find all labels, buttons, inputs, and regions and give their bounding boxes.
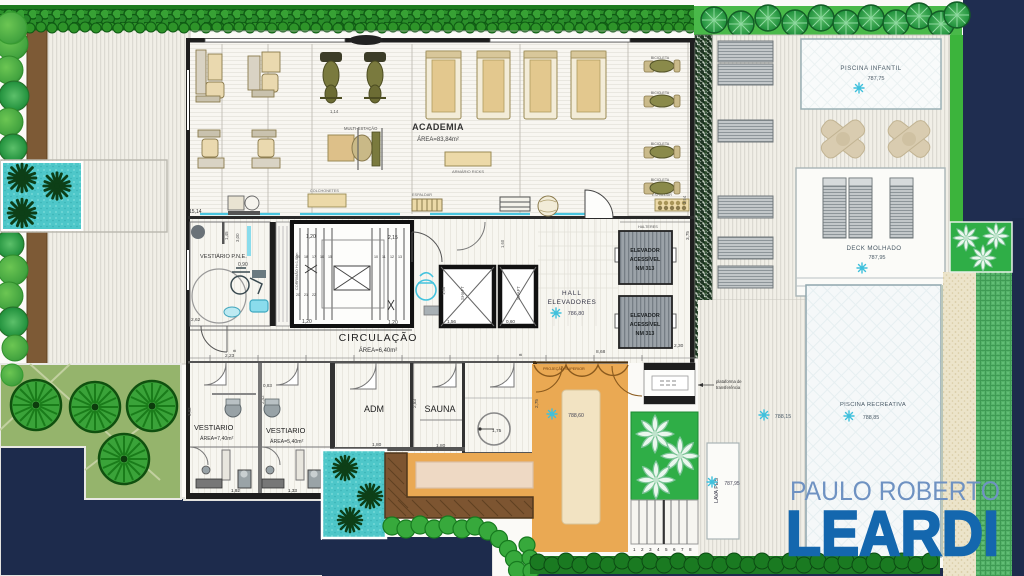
svg-text:ELEVADOR: ELEVADOR (630, 248, 660, 254)
svg-text:18: 18 (304, 255, 308, 259)
svg-text:21: 21 (304, 293, 308, 297)
svg-text:1,20: 1,20 (302, 319, 312, 325)
svg-text:7: 7 (681, 547, 684, 552)
svg-text:20: 20 (296, 293, 300, 297)
svg-text:2,15: 2,15 (388, 235, 398, 241)
svg-text:3,75: 3,75 (685, 231, 690, 240)
svg-text:787,75: 787,75 (867, 76, 884, 82)
svg-text:2: 2 (641, 547, 644, 552)
svg-text:1,45: 1,45 (224, 231, 229, 240)
svg-text:ADM: ADM (364, 404, 384, 414)
svg-text:4: 4 (657, 547, 660, 552)
svg-text:788,15: 788,15 (775, 414, 792, 420)
svg-text:ACESSÍVEL: ACESSÍVEL (630, 255, 661, 263)
svg-text:ÁREA=5,40m²: ÁREA=5,40m² (270, 438, 304, 445)
svg-text:6: 6 (673, 547, 676, 552)
svg-text:LEARDI: LEARDI (786, 499, 999, 569)
svg-text:SHAFT: SHAFT (516, 286, 521, 300)
svg-text:ACESSÍVEL: ACESSÍVEL (630, 320, 661, 328)
svg-text:BICICLETA: BICICLETA (651, 56, 670, 60)
svg-text:17: 17 (312, 255, 316, 259)
svg-text:1,20: 1,20 (306, 234, 316, 240)
svg-text:1,33: 1,33 (288, 488, 297, 493)
svg-text:8: 8 (689, 547, 692, 552)
svg-text:ÁREA=83,84m²: ÁREA=83,84m² (417, 136, 459, 143)
svg-text:ARMÁRIO RICKS: ARMÁRIO RICKS (452, 169, 484, 174)
svg-text:SAUNA: SAUNA (424, 404, 455, 414)
svg-text:PISCINA INFANTIL: PISCINA INFANTIL (840, 65, 901, 72)
svg-text:3,92: 3,92 (187, 407, 192, 416)
svg-text:ELEVADORES: ELEVADORES (548, 299, 597, 306)
svg-text:1,92: 1,92 (231, 488, 240, 493)
svg-text:BICICLETA: BICICLETA (651, 91, 670, 95)
svg-text:ÁREA=7,40m²: ÁREA=7,40m² (200, 435, 234, 442)
svg-text:15: 15 (328, 255, 332, 259)
svg-text:11: 11 (382, 255, 386, 259)
svg-text:0,60: 0,60 (506, 319, 515, 324)
svg-text:1: 1 (633, 547, 636, 552)
svg-text:ELEVADOR: ELEVADOR (630, 313, 660, 319)
svg-text:15,14: 15,14 (189, 209, 202, 215)
svg-text:3,54: 3,54 (682, 195, 687, 204)
svg-text:ESPALDAR: ESPALDAR (412, 193, 432, 197)
svg-text:DECK MOLHADO: DECK MOLHADO (847, 245, 902, 252)
svg-text:1,75: 1,75 (492, 428, 502, 434)
svg-text:1,14: 1,14 (330, 109, 339, 114)
svg-text:787,95: 787,95 (868, 255, 885, 261)
svg-text:HALL: HALL (562, 290, 582, 297)
svg-text:5: 5 (665, 547, 668, 552)
svg-text:MULTI-ESTAÇÃO: MULTI-ESTAÇÃO (344, 126, 378, 131)
svg-text:2,83: 2,83 (412, 399, 417, 408)
svg-text:13: 13 (398, 255, 402, 259)
svg-text:788,60: 788,60 (568, 413, 584, 419)
svg-text:2,30: 2,30 (674, 343, 684, 349)
svg-text:1,20: 1,20 (388, 320, 398, 326)
svg-text:1,56: 1,56 (447, 319, 456, 324)
svg-text:CIRCULAÇÃO: CIRCULAÇÃO (339, 331, 418, 344)
svg-text:BICICLETA: BICICLETA (651, 142, 670, 146)
svg-text:NM 313: NM 313 (636, 266, 655, 272)
svg-text:2,75: 2,75 (534, 399, 539, 408)
svg-text:10: 10 (374, 255, 378, 259)
svg-text:1,60: 1,60 (500, 239, 505, 248)
svg-text:NM 313: NM 313 (636, 331, 655, 337)
svg-text:12: 12 (390, 255, 394, 259)
svg-text:787,95: 787,95 (724, 481, 740, 487)
svg-text:16: 16 (320, 255, 324, 259)
svg-text:SHAFT: SHAFT (460, 286, 465, 300)
svg-text:PISCINA RECREATIVA: PISCINA RECREATIVA (840, 402, 906, 408)
svg-text:plataforma de: plataforma de (716, 379, 742, 384)
svg-text:HALTERES: HALTERES (638, 225, 658, 229)
svg-text:VESTIARIO: VESTIARIO (194, 423, 234, 432)
svg-text:0,90: 0,90 (238, 262, 248, 268)
svg-text:BICICLETA: BICICLETA (651, 178, 670, 182)
svg-text:0,83: 0,83 (263, 383, 272, 388)
svg-text:1,56: 1,56 (441, 286, 446, 295)
svg-text:2,62: 2,62 (191, 317, 201, 323)
svg-text:ACADEMIA: ACADEMIA (412, 122, 464, 132)
svg-text:ÁREA=6,40m²: ÁREA=6,40m² (359, 347, 398, 354)
svg-text:PROJEÇÃO SUPERIOR: PROJEÇÃO SUPERIOR (543, 366, 585, 371)
svg-text:VESTIÁRIO P.N.E.: VESTIÁRIO P.N.E. (200, 253, 247, 260)
svg-text:3,00: 3,00 (235, 233, 240, 242)
svg-text:transferência: transferência (716, 385, 741, 390)
svg-text:22: 22 (312, 293, 316, 297)
svg-text:3: 3 (649, 547, 652, 552)
svg-text:CORRIMÃO H=1,00m: CORRIMÃO H=1,00m (294, 253, 299, 290)
svg-text:786,80: 786,80 (568, 311, 585, 317)
svg-text:8,68: 8,68 (596, 349, 606, 355)
svg-text:VESTIARIO: VESTIARIO (266, 426, 306, 435)
svg-text:COLCHONETES: COLCHONETES (310, 189, 339, 193)
svg-text:788,85: 788,85 (863, 415, 880, 421)
